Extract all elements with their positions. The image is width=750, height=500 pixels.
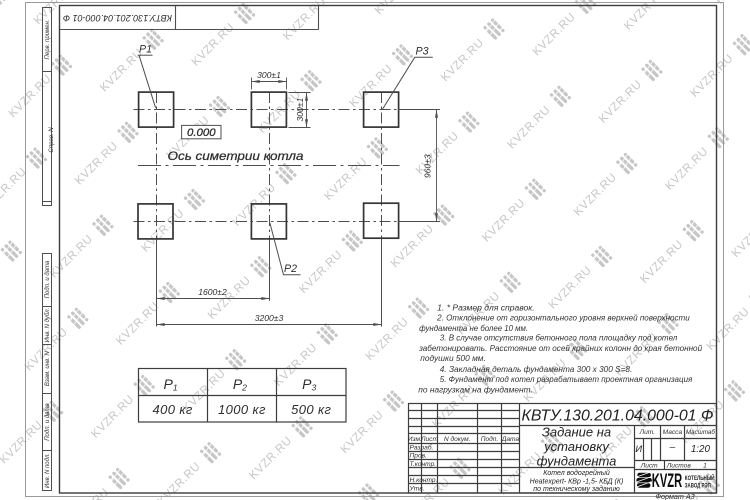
svg-text:1000 кг: 1000 кг bbox=[218, 402, 266, 417]
svg-text:подушки 500 мм.: подушки 500 мм. bbox=[420, 354, 486, 363]
svg-text:400 кг: 400 кг bbox=[152, 402, 192, 417]
svg-text:Изм.: Изм. bbox=[408, 436, 422, 443]
svg-text:Масштаб: Масштаб bbox=[686, 428, 715, 436]
svg-text:1: 1 bbox=[703, 463, 707, 470]
svg-text:500 кг: 500 кг bbox=[291, 402, 331, 417]
svg-text:Р2: Р2 bbox=[284, 263, 297, 275]
svg-text:–: – bbox=[669, 442, 676, 453]
svg-text:300±1: 300±1 bbox=[257, 70, 281, 80]
svg-text:по техническому заданию: по техническому заданию bbox=[533, 485, 620, 493]
svg-text:960±3: 960±3 bbox=[423, 154, 433, 178]
svg-text:КВТУ.130.201.04.000-01 Ф: КВТУ.130.201.04.000-01 Ф bbox=[522, 407, 714, 424]
svg-text:КОТЕЛЬНЫЙ: КОТЕЛЬНЫЙ bbox=[685, 474, 715, 482]
svg-text:И: И bbox=[635, 443, 642, 454]
svg-text:установку: установку bbox=[543, 439, 610, 454]
svg-text:Пров.: Пров. bbox=[410, 453, 428, 460]
svg-text:Подп. и дата: Подп. и дата bbox=[45, 403, 51, 441]
svg-text:Подп.: Подп. bbox=[481, 435, 499, 443]
svg-text:Утв.: Утв. bbox=[409, 485, 425, 492]
svg-text:300±1: 300±1 bbox=[295, 97, 305, 121]
svg-text:Лист: Лист bbox=[420, 436, 438, 443]
svg-text:3200±3: 3200±3 bbox=[255, 313, 284, 323]
svg-text:фундамента не более 10 мм.: фундамента не более 10 мм. bbox=[419, 324, 528, 333]
svg-text:0.000: 0.000 bbox=[187, 127, 216, 139]
svg-text:Перв. примен.: Перв. примен. bbox=[45, 20, 51, 60]
svg-text:Взам. инв. N: Взам. инв. N bbox=[45, 350, 51, 386]
svg-text:KVZR: KVZR bbox=[652, 470, 682, 492]
svg-text:Инв. N дубл.: Инв. N дубл. bbox=[45, 308, 51, 343]
svg-text:Разраб.: Разраб. bbox=[410, 444, 434, 452]
svg-text:Инв. N подл.: Инв. N подл. bbox=[45, 453, 51, 488]
svg-text:Лит.: Лит. bbox=[639, 429, 656, 436]
svg-text:Н.контр.: Н.контр. bbox=[410, 477, 438, 484]
svg-text:4. Закладная деталь фундамента: 4. Закладная деталь фундамента 300 x 300… bbox=[440, 365, 633, 374]
svg-text:3. В случае отсутствия бетонно: 3. В случае отсутствия бетонного пола пл… bbox=[440, 334, 678, 343]
svg-text:Масса: Масса bbox=[663, 429, 683, 436]
svg-text:5. Фундамент под котел разраба: 5. Фундамент под котел разрабатывает про… bbox=[440, 375, 693, 384]
svg-text:ЗАВОД РЭП: ЗАВОД РЭП bbox=[685, 483, 711, 489]
svg-text:Лист: Лист bbox=[640, 463, 658, 470]
svg-text:по нагрузкам на фундамент.: по нагрузкам на фундамент. bbox=[418, 385, 533, 394]
svg-text:1600±2: 1600±2 bbox=[198, 287, 227, 297]
svg-text:Задание на: Задание на bbox=[542, 425, 611, 440]
svg-text:1:20: 1:20 bbox=[691, 444, 711, 455]
svg-text:Р1: Р1 bbox=[139, 44, 152, 56]
svg-text:забетонировать. Расстояние от: забетонировать. Расстояние от осей крайн… bbox=[418, 344, 703, 353]
svg-text:Р3: Р3 bbox=[416, 46, 429, 58]
svg-text:N докум.: N докум. bbox=[444, 435, 471, 443]
svg-text:Формат А3: Формат А3 bbox=[655, 492, 694, 500]
svg-text:Справ. N: Справ. N bbox=[49, 127, 55, 153]
svg-text:Ось симетрии котла: Ось симетрии котла bbox=[168, 149, 304, 163]
svg-text:1. * Размер для справок.: 1. * Размер для справок. bbox=[437, 303, 535, 312]
svg-text:Котел водогрейный: Котел водогрейный bbox=[543, 469, 610, 477]
svg-text:КВТУ.130.201.04.000-01 Ф: КВТУ.130.201.04.000-01 Ф bbox=[62, 13, 172, 24]
svg-text:Т.контр.: Т.контр. bbox=[410, 461, 437, 468]
svg-text:фундамента: фундамента bbox=[537, 454, 617, 469]
svg-text:Подп. и дата: Подп. и дата bbox=[45, 260, 51, 298]
svg-text:Листов: Листов bbox=[666, 463, 692, 470]
svg-text:Дата: Дата bbox=[501, 436, 520, 443]
svg-text:2. Отклонение от горизонтально: 2. Отклонение от горизонтального уровня … bbox=[436, 314, 690, 323]
svg-text:Heatexpert- КВр -1,5- КБД (К): Heatexpert- КВр -1,5- КБД (К) bbox=[530, 478, 624, 485]
